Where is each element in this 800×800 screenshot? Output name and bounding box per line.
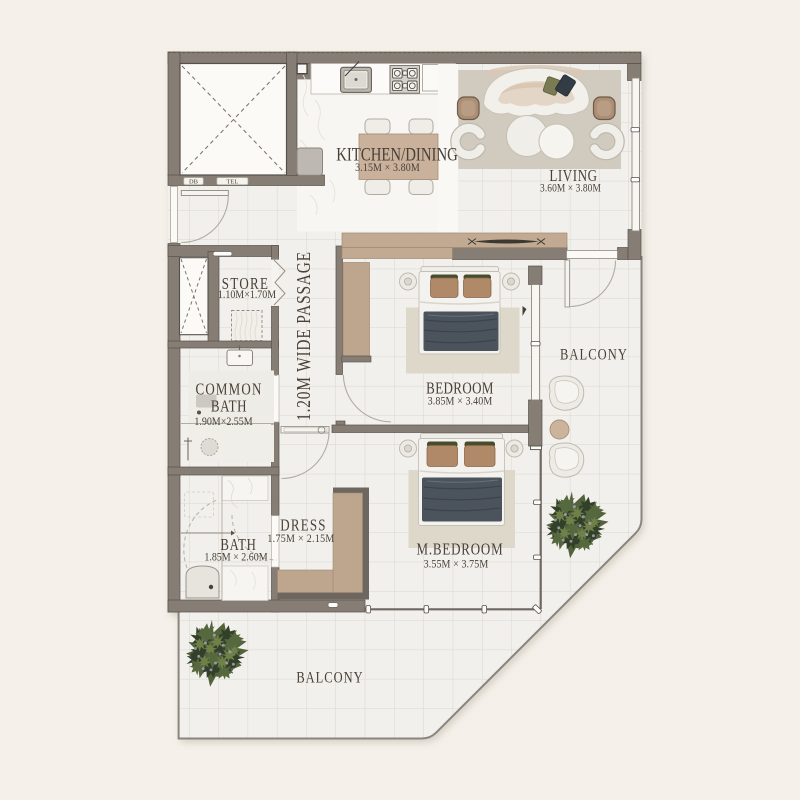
svg-text:3.15M × 3.80M: 3.15M × 3.80M — [355, 161, 420, 174]
svg-text:1.85M × 2.60M: 1.85M × 2.60M — [204, 551, 268, 564]
svg-text:1.90M×2.55M: 1.90M×2.55M — [194, 415, 253, 428]
svg-text:3.55M × 3.75M: 3.55M × 3.75M — [424, 558, 489, 571]
svg-text:3.60M × 3.80M: 3.60M × 3.80M — [540, 183, 601, 195]
svg-text:1.75M × 2.15M: 1.75M × 2.15M — [267, 532, 334, 545]
svg-text:DB: DB — [189, 179, 198, 186]
svg-text:1.20M WIDE PASSAGE: 1.20M WIDE PASSAGE — [292, 251, 314, 421]
svg-text:1.10M×1.70M: 1.10M×1.70M — [218, 288, 277, 301]
svg-text:3.85M × 3.40M: 3.85M × 3.40M — [428, 395, 493, 408]
svg-text:M.BEDROOM: M.BEDROOM — [417, 541, 504, 559]
svg-text:BATH: BATH — [211, 398, 247, 416]
svg-text:TEL: TEL — [227, 179, 239, 186]
svg-text:BALCONY: BALCONY — [560, 346, 628, 364]
svg-text:COMMON: COMMON — [195, 381, 262, 399]
svg-text:BALCONY: BALCONY — [296, 669, 363, 687]
